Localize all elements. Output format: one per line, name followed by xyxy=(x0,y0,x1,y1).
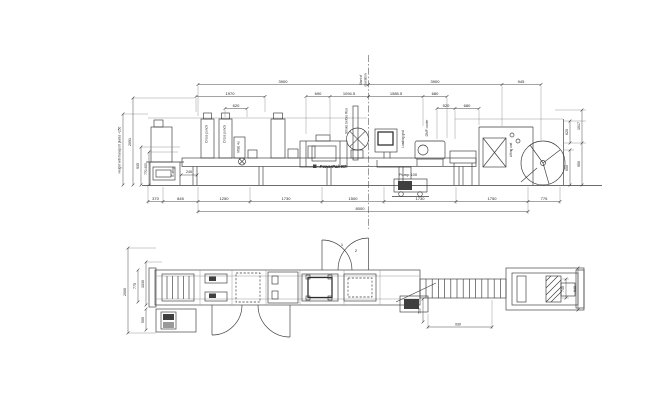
dim-label: 945 xyxy=(518,79,525,84)
dim-label: 1730 xyxy=(282,196,292,201)
dim-label: 370 xyxy=(152,196,159,201)
dim-total-label: 8000 xyxy=(356,206,366,211)
dim-label: 1730 xyxy=(416,196,426,201)
dim-label: 680 xyxy=(464,103,471,108)
lift-unit-label: MSE 4u xyxy=(237,141,241,153)
dim-label: 1250 xyxy=(220,196,230,201)
plan-chain-conveyor xyxy=(420,279,506,298)
punch-column-3 xyxy=(271,113,285,158)
dim-label: 1094.5 xyxy=(343,91,356,96)
centerline-note-line1: Start of xyxy=(359,75,363,85)
cooler-unit xyxy=(415,141,445,166)
dim-label: 3900 xyxy=(279,79,289,84)
dim-label: 2000 xyxy=(123,288,127,296)
loading-grid-label: Loading grid xyxy=(401,130,405,148)
machine-layout-drawing: Start of operation Cross punch xyxy=(0,0,646,400)
left-dimension-stack: Height with transport plates +250 2091 9… xyxy=(118,97,199,187)
dim-label: 1585.5 xyxy=(390,91,403,96)
dim-label: 2091 xyxy=(128,138,132,146)
dim-label: 845 xyxy=(177,196,184,201)
dim-label: 620 xyxy=(233,103,240,108)
dim-label: 505 xyxy=(141,317,145,323)
plan-view: 1 2 xyxy=(123,238,584,337)
dim-label: 500 xyxy=(418,308,422,314)
beam-mounted-items xyxy=(248,146,315,158)
plan-punch-module xyxy=(205,273,260,302)
dim-label: 940 xyxy=(573,286,577,292)
dim-label: 770-905 xyxy=(144,163,148,175)
dim-label: 930 xyxy=(455,323,461,327)
blower-column xyxy=(347,106,369,160)
brand-logo-icon xyxy=(313,165,317,169)
dim-label: 245 xyxy=(186,170,192,174)
control-panel xyxy=(375,129,397,159)
estop-label: E-stop xyxy=(171,167,175,176)
plan-guard-doors-bottom xyxy=(212,305,290,337)
dim-label: 740 xyxy=(561,286,565,292)
dim-label: 520 xyxy=(443,103,450,108)
door-number-2: 2 xyxy=(355,248,358,253)
door-number-1: 1 xyxy=(341,242,344,247)
plan-forming-module xyxy=(302,274,338,301)
pump-label: Pump 100 xyxy=(399,172,418,177)
plan-infeed-module xyxy=(162,274,194,301)
conveyor-beam xyxy=(182,158,476,185)
left-control-cabinet xyxy=(146,120,184,185)
dim-label: 1970 xyxy=(226,91,236,96)
bottom-dimension-rows: 370 845 1250 1730 1500 1730 1750 775 800… xyxy=(147,187,562,214)
film-unit-label: Lifting unit xyxy=(509,143,513,158)
plan-control-cabinet xyxy=(156,309,196,332)
dim-label: 620 xyxy=(565,129,569,135)
plan-mid-module xyxy=(268,272,298,303)
brand-label: PowerPak RT xyxy=(320,164,347,169)
dim-label: 1017 xyxy=(577,122,581,130)
dim-label: 690 xyxy=(315,91,322,96)
cross-punch-1-label: Cross punch xyxy=(205,125,209,143)
dim-label: 1500 xyxy=(349,196,359,201)
dim-label: 1030 xyxy=(141,280,145,288)
dim-label: 775 xyxy=(541,196,548,201)
cooler-label: GMF cooler xyxy=(425,119,429,137)
stroke-note-label: Stroke before Run xyxy=(345,108,349,134)
dim-label: 650 xyxy=(565,165,569,171)
cross-punch-2-label: Cross punch xyxy=(223,125,227,143)
plan-guard-doors-top xyxy=(322,238,369,270)
drawing-svg: Start of operation Cross punch xyxy=(0,0,646,400)
dim-label: 3900 xyxy=(431,79,441,84)
right-dimension-stack: 620 1017 650 950 xyxy=(555,109,586,187)
dim-label: 935 xyxy=(136,163,140,169)
dim-label: 950 xyxy=(577,161,581,167)
side-elevation-view: Start of operation Cross punch xyxy=(118,55,603,229)
dim-label: 775 xyxy=(133,283,137,289)
dim-label: 1750 xyxy=(488,196,498,201)
forming-station xyxy=(300,135,347,167)
plan-bottom-dimensions: 500 930 xyxy=(418,298,494,329)
dim-label: 680 xyxy=(432,91,439,96)
height-note-label: Height with transport plates +250 xyxy=(118,126,122,173)
